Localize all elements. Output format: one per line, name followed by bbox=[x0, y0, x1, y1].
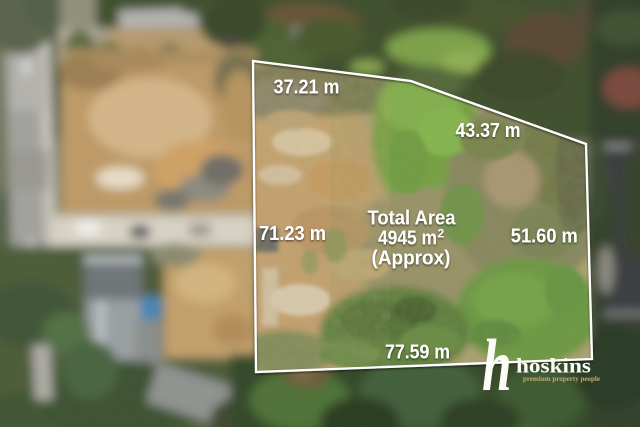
svg-text:71.23 m: 71.23 m bbox=[259, 223, 326, 245]
svg-text:77.59 m: 77.59 m bbox=[385, 342, 450, 364]
svg-text:h: h bbox=[482, 325, 512, 406]
svg-text:37.21 m: 37.21 m bbox=[274, 77, 340, 99]
svg-text:(Approx): (Approx) bbox=[372, 248, 451, 270]
svg-text:51.60 m: 51.60 m bbox=[511, 226, 578, 248]
svg-text:premium property people: premium property people bbox=[523, 374, 601, 383]
svg-text:43.37 m: 43.37 m bbox=[456, 120, 521, 142]
svg-text:2: 2 bbox=[438, 227, 445, 241]
svg-text:4945 m: 4945 m bbox=[378, 228, 437, 250]
